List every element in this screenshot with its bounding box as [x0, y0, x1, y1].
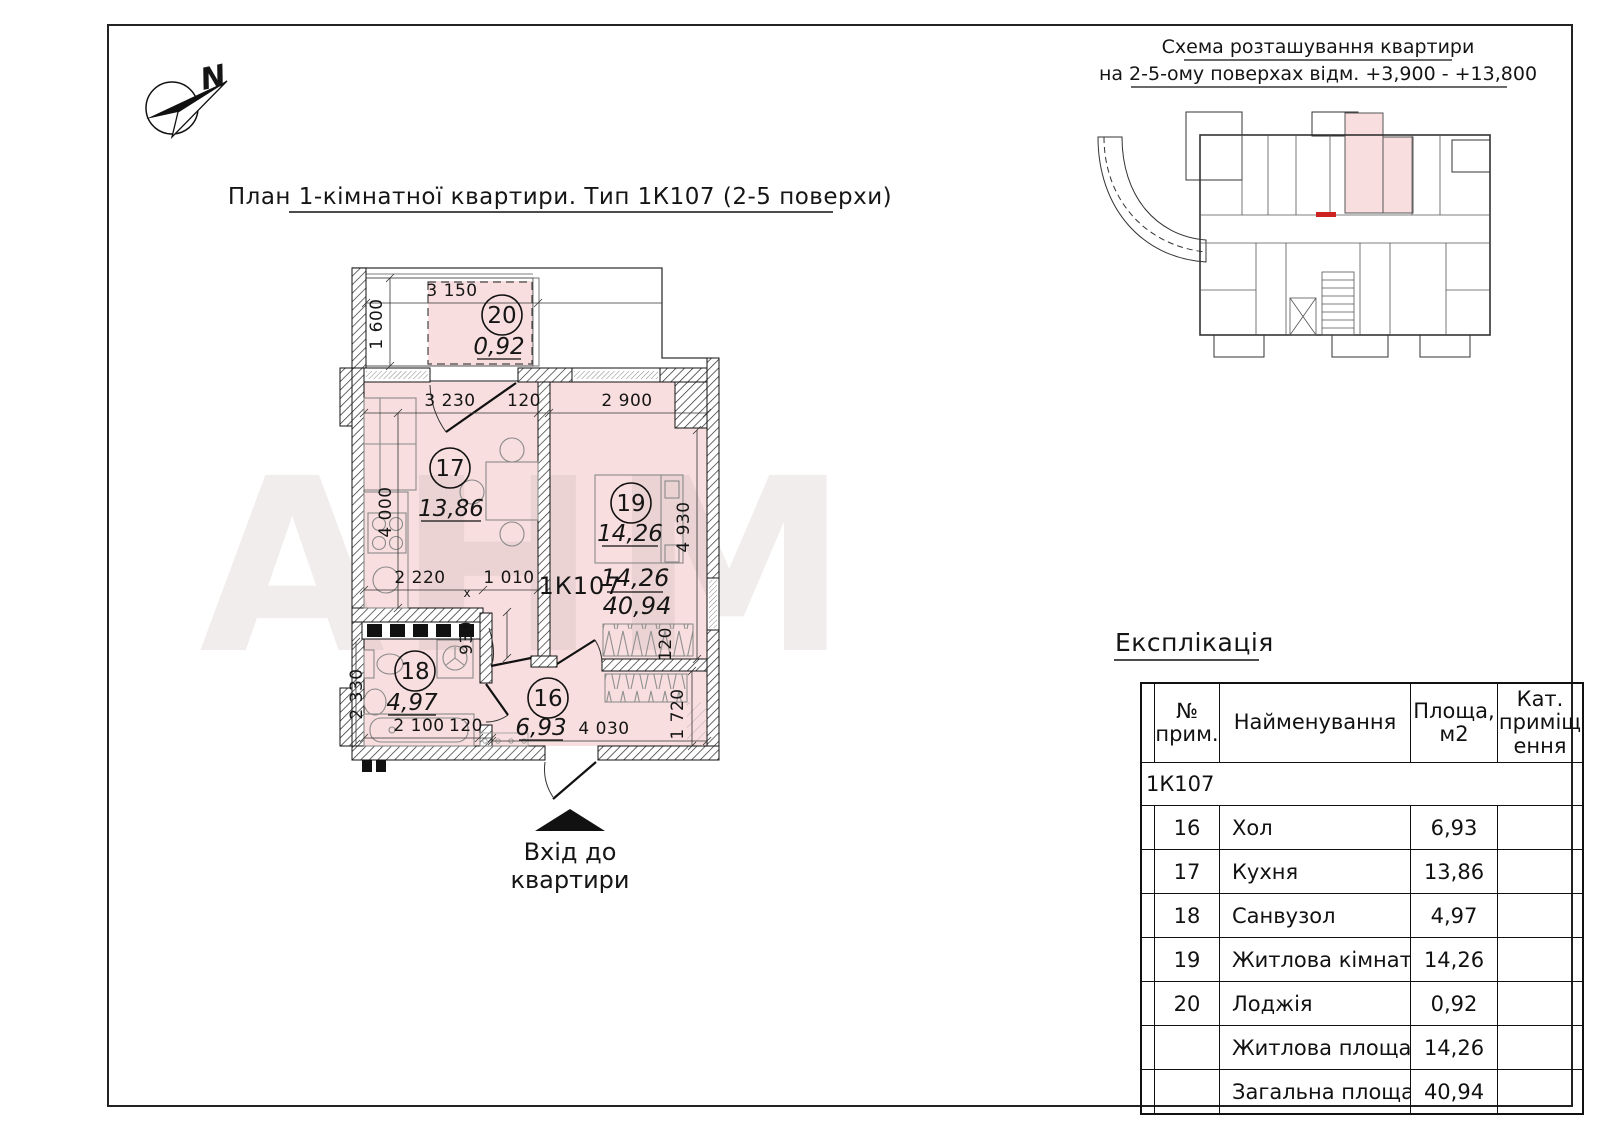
highlighted-unit: [1345, 113, 1383, 213]
explication-table: № прим. Найменування Площа, м2 Кат. прим…: [1140, 682, 1584, 1115]
row-no: [1155, 1026, 1220, 1070]
header-cat-line1: Кат.: [1517, 687, 1564, 711]
row-no: [1155, 1070, 1220, 1115]
explication-title: Експлікація: [1115, 628, 1274, 657]
window-kitchen: [364, 368, 430, 382]
row-area: 40,94: [1411, 1070, 1498, 1115]
header-spacer: [1141, 683, 1155, 763]
dim-room19-w: 2 900: [601, 391, 652, 411]
row-name: Санвузол: [1220, 894, 1411, 938]
entrance-label-line1: Вхід до: [524, 838, 617, 866]
row-spacer: [1141, 1070, 1155, 1115]
table-row-total-overall: Загальна площа 40,94: [1141, 1070, 1583, 1115]
row-name: Загальна площа: [1220, 1070, 1411, 1115]
elevator-shaft: [1290, 298, 1316, 335]
table-row: 16 Хол 6,93: [1141, 806, 1583, 850]
dim-counter-w: 2 220: [394, 568, 445, 588]
table-row: 20 Лоджія 0,92: [1141, 982, 1583, 1026]
row-area: 6,93: [1411, 806, 1498, 850]
room-18-area: 4,97: [386, 690, 438, 716]
header-no-line2: прим.: [1155, 722, 1218, 746]
row-area: 13,86: [1411, 850, 1498, 894]
hall-closet-hatch: [687, 702, 707, 746]
dim-bath-w: 2 100: [393, 716, 444, 736]
row-no: 18: [1155, 894, 1220, 938]
row-name: Житлова площа: [1220, 1026, 1411, 1070]
row-spacer: [1141, 938, 1155, 982]
floor-plan: АНМ: [199, 268, 860, 894]
dim-kdoor-w: 1 010: [483, 568, 534, 588]
window-room19: [572, 368, 660, 382]
group-label: 1К107: [1141, 763, 1583, 806]
room-19-area: 14,26: [597, 521, 663, 547]
row-name: Лоджія: [1220, 982, 1411, 1026]
row-name: Житлова кімната: [1220, 938, 1411, 982]
room-20-area: 0,92: [473, 334, 524, 360]
loggia-pier-wall: [352, 268, 366, 370]
highlighted-unit-room: [1383, 137, 1413, 213]
header-area-line1: Площа,: [1413, 699, 1494, 723]
room-19-num: 19: [616, 491, 645, 517]
room-18-num: 18: [400, 659, 429, 685]
row-no: 19: [1155, 938, 1220, 982]
header-cat-line3: ення: [1513, 734, 1566, 758]
entrance-arrow-icon: [535, 809, 605, 831]
row-no: 16: [1155, 806, 1220, 850]
dim-xmark: х: [463, 586, 470, 600]
explication-header-row: № прим. Найменування Площа, м2 Кат. прим…: [1141, 683, 1583, 763]
row-no: 20: [1155, 982, 1220, 1026]
drawing-sheet: N План 1-кімнатної квартири. Тип 1К107 (…: [0, 0, 1600, 1132]
table-row: 18 Санвузол 4,97: [1141, 894, 1583, 938]
row-name: Кухня: [1220, 850, 1411, 894]
window-room19-east: [707, 578, 719, 630]
dim-kitchen-d: 4 000: [376, 486, 396, 537]
row-no: 17: [1155, 850, 1220, 894]
group-row: 1К107: [1141, 763, 1583, 806]
header-no-line1: №: [1176, 699, 1198, 723]
row-spacer: [1141, 1026, 1155, 1070]
entrance-marker: Вхід до квартири: [511, 809, 630, 894]
row-spacer: [1141, 806, 1155, 850]
unit-entrance-mark: [1316, 212, 1336, 217]
row-area: 0,92: [1411, 982, 1498, 1026]
row-spacer: [1141, 850, 1155, 894]
room-16-num: 16: [533, 686, 562, 712]
area-living: 14,26: [601, 564, 670, 592]
room-17-num: 17: [435, 456, 464, 482]
dim-closet-d: 1 720: [668, 688, 688, 739]
entrance-label-line2: квартири: [511, 866, 630, 894]
row-cat: [1498, 1026, 1584, 1070]
dim-loggia-w: 3 150: [426, 281, 477, 301]
row-cat: [1498, 1070, 1584, 1115]
room-16-area: 6,93: [515, 715, 566, 741]
dim-bath-d: 2 330: [347, 668, 367, 719]
header-cat-line2: приміщ: [1499, 710, 1581, 734]
row-cat: [1498, 982, 1584, 1026]
room-20-num: 20: [487, 303, 516, 329]
area-total: 40,94: [603, 592, 672, 620]
header-no: № прим.: [1155, 683, 1220, 763]
row-area: 4,97: [1411, 894, 1498, 938]
row-name: Хол: [1220, 806, 1411, 850]
table-row: 17 Кухня 13,86: [1141, 850, 1583, 894]
header-name: Найменування: [1220, 683, 1411, 763]
stairwell: [1322, 272, 1354, 335]
header-area-line2: м2: [1439, 722, 1468, 746]
north-label: N: [197, 58, 229, 97]
table-row-total-living: Житлова площа 14,26: [1141, 1026, 1583, 1070]
dim-kitchen-wall: 120: [507, 391, 541, 411]
row-area: 14,26: [1411, 938, 1498, 982]
dim-bath-wall: 120: [449, 716, 483, 736]
dim-room19-d: 4 930: [674, 501, 694, 552]
row-cat: [1498, 894, 1584, 938]
dim-closet-g: 120: [656, 627, 676, 661]
header-area: Площа, м2: [1411, 683, 1498, 763]
row-cat: [1498, 850, 1584, 894]
plan-title: План 1-кімнатної квартири. Тип 1К107 (2-…: [228, 184, 892, 210]
dim-hall-w: 4 030: [578, 719, 629, 739]
row-spacer: [1141, 982, 1155, 1026]
header-cat: Кат. приміщ ення: [1498, 683, 1584, 763]
row-cat: [1498, 806, 1584, 850]
table-row: 19 Житлова кімната 14,26: [1141, 938, 1583, 982]
row-cat: [1498, 938, 1584, 982]
schematic-title-line2: на 2-5-ому поверхах відм. +3,900 - +13,8…: [1099, 63, 1537, 85]
dim-kitchen-w: 3 230: [424, 391, 475, 411]
north-compass-icon: N: [146, 58, 229, 137]
watermark: АНМ: [199, 427, 860, 707]
row-area: 14,26: [1411, 1026, 1498, 1070]
building-schematic: [1098, 112, 1490, 357]
dim-loggia-d: 1 600: [367, 298, 387, 349]
schematic-title-line1: Схема розташування квартири: [1162, 36, 1475, 58]
room-17-area: 13,86: [418, 496, 484, 522]
row-spacer: [1141, 894, 1155, 938]
wardrobe-room19: [603, 624, 693, 656]
dim-hdoor-w: 930: [457, 621, 477, 655]
